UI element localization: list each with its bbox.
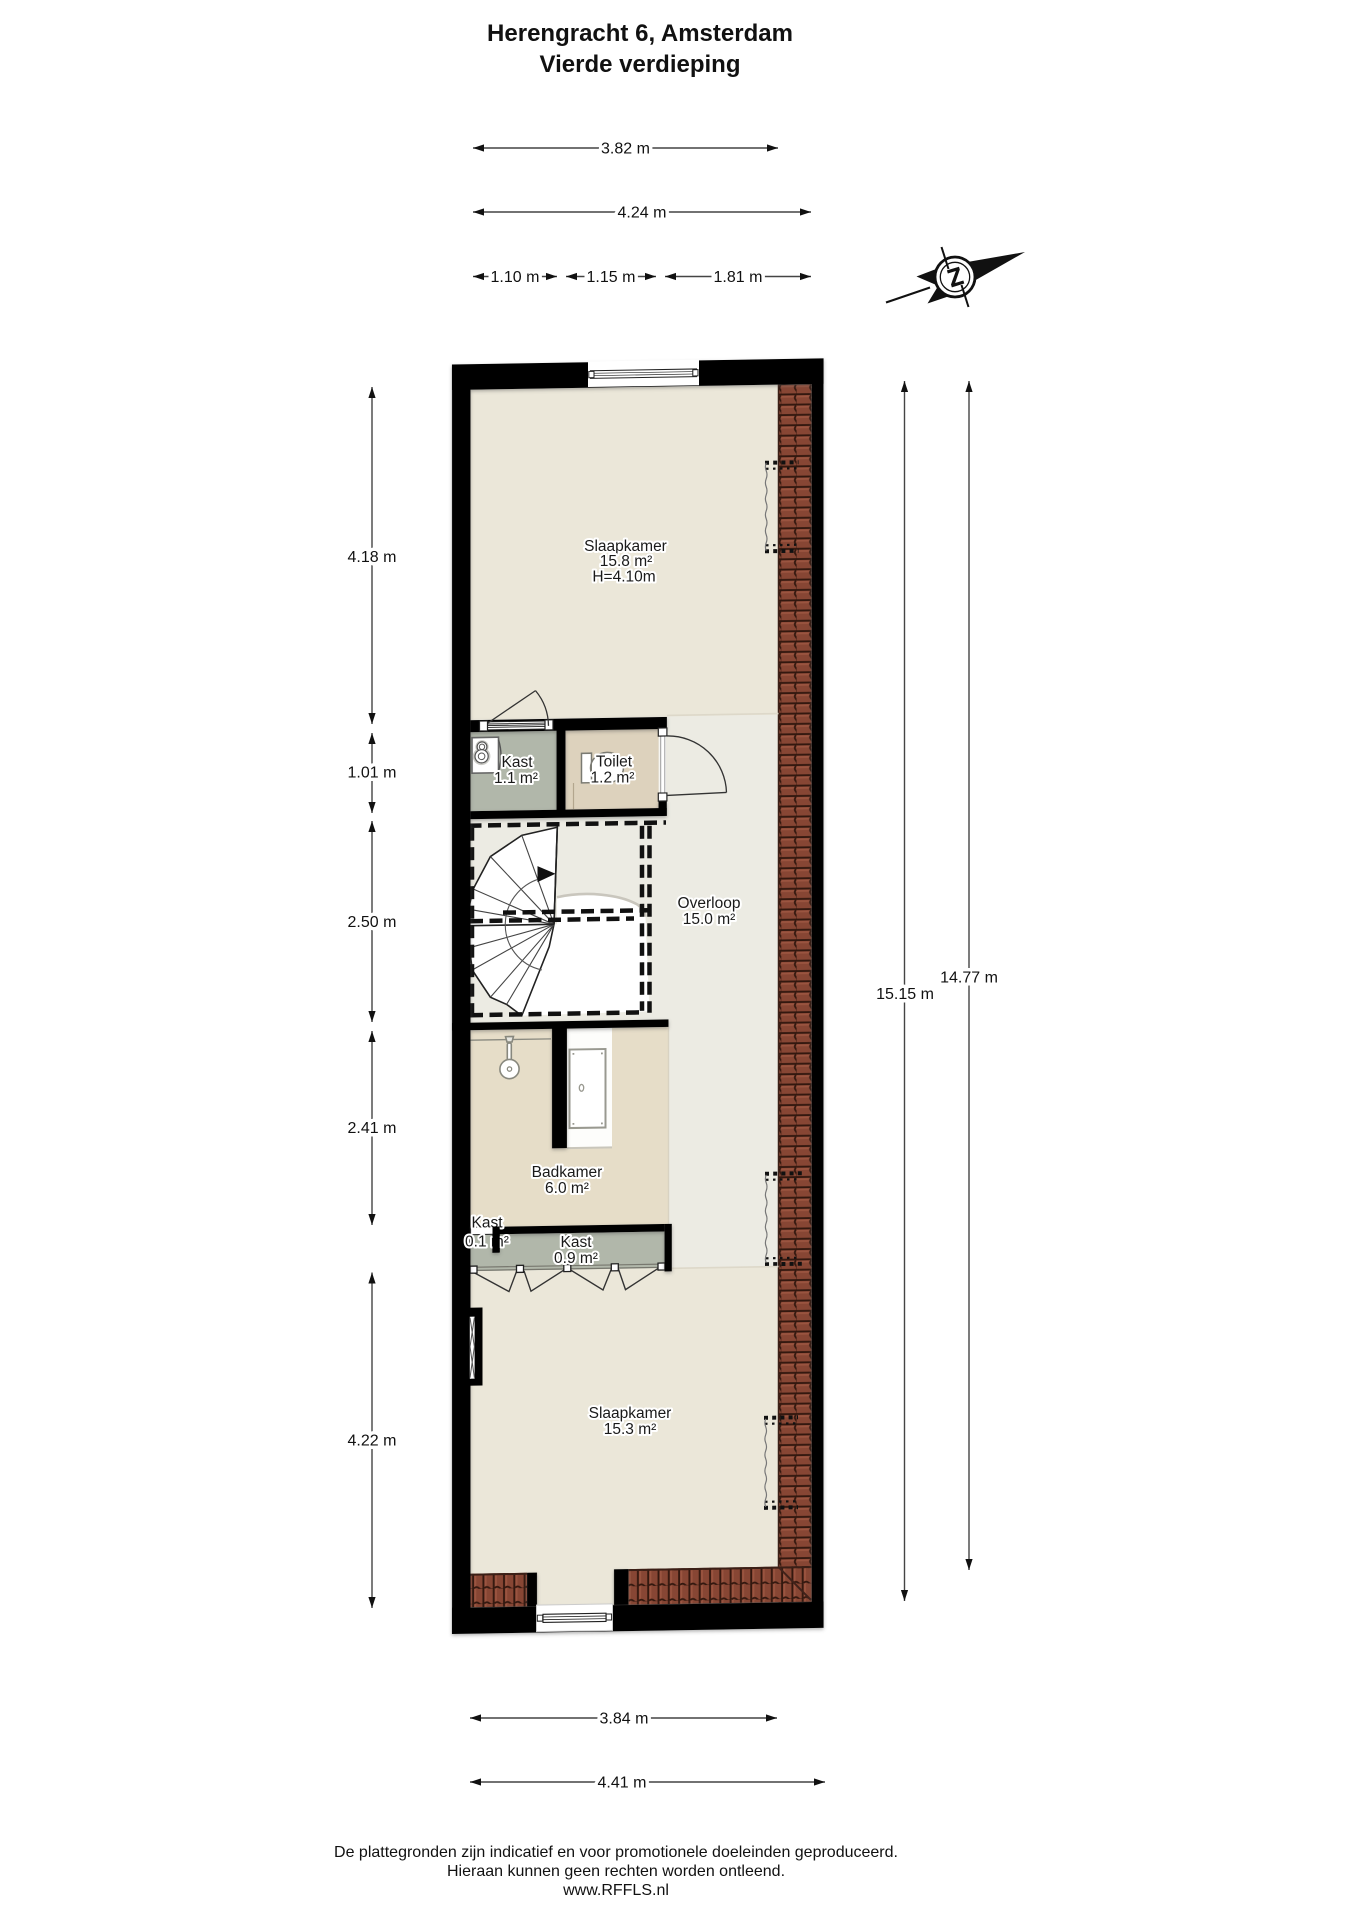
svg-text:1.81 m: 1.81 m [714, 269, 763, 286]
svg-text:2.41 m: 2.41 m [348, 1120, 397, 1137]
svg-text:1.01 m: 1.01 m [348, 765, 397, 782]
svg-text:6.0 m²: 6.0 m² [545, 1180, 589, 1197]
svg-text:Kast: Kast [501, 754, 533, 771]
svg-text:1.15 m: 1.15 m [587, 269, 636, 286]
svg-text:15.8 m²: 15.8 m² [600, 553, 653, 570]
svg-text:www.RFFLS.nl: www.RFFLS.nl [562, 1882, 669, 1899]
svg-text:15.3 m²: 15.3 m² [604, 1421, 657, 1438]
svg-text:Toilet: Toilet [596, 754, 633, 771]
svg-text:Badkamer: Badkamer [532, 1164, 603, 1181]
svg-text:4.41 m: 4.41 m [598, 1775, 647, 1792]
svg-text:Slaapkamer: Slaapkamer [589, 1405, 672, 1422]
svg-text:Kast: Kast [560, 1234, 592, 1251]
svg-text:H=4.10m: H=4.10m [592, 569, 655, 586]
svg-text:Overloop: Overloop [678, 895, 741, 912]
svg-text:3.84 m: 3.84 m [600, 1711, 649, 1728]
svg-text:2.50 m: 2.50 m [348, 914, 397, 931]
svg-text:15.15 m: 15.15 m [876, 986, 934, 1003]
svg-text:4.22 m: 4.22 m [348, 1433, 397, 1450]
svg-text:1.1 m²: 1.1 m² [494, 770, 538, 787]
svg-text:De plattegronden zijn indicati: De plattegronden zijn indicatief en voor… [334, 1844, 898, 1861]
svg-text:14.77 m: 14.77 m [940, 970, 998, 987]
svg-text:Vierde verdieping: Vierde verdieping [540, 51, 741, 78]
svg-text:Hieraan kunnen geen rechten wo: Hieraan kunnen geen rechten worden ontle… [447, 1863, 785, 1880]
svg-text:0.9 m²: 0.9 m² [554, 1250, 598, 1267]
svg-text:1.10 m: 1.10 m [491, 269, 540, 286]
svg-text:15.0 m²: 15.0 m² [683, 911, 736, 928]
svg-text:1.2 m²: 1.2 m² [591, 770, 635, 787]
svg-text:4.24 m: 4.24 m [618, 205, 667, 222]
svg-text:0.1 m²: 0.1 m² [465, 1234, 509, 1251]
svg-text:Herengracht 6, Amsterdam: Herengracht 6, Amsterdam [487, 20, 793, 47]
svg-text:4.18 m: 4.18 m [348, 549, 397, 566]
svg-text:3.82 m: 3.82 m [601, 141, 650, 158]
